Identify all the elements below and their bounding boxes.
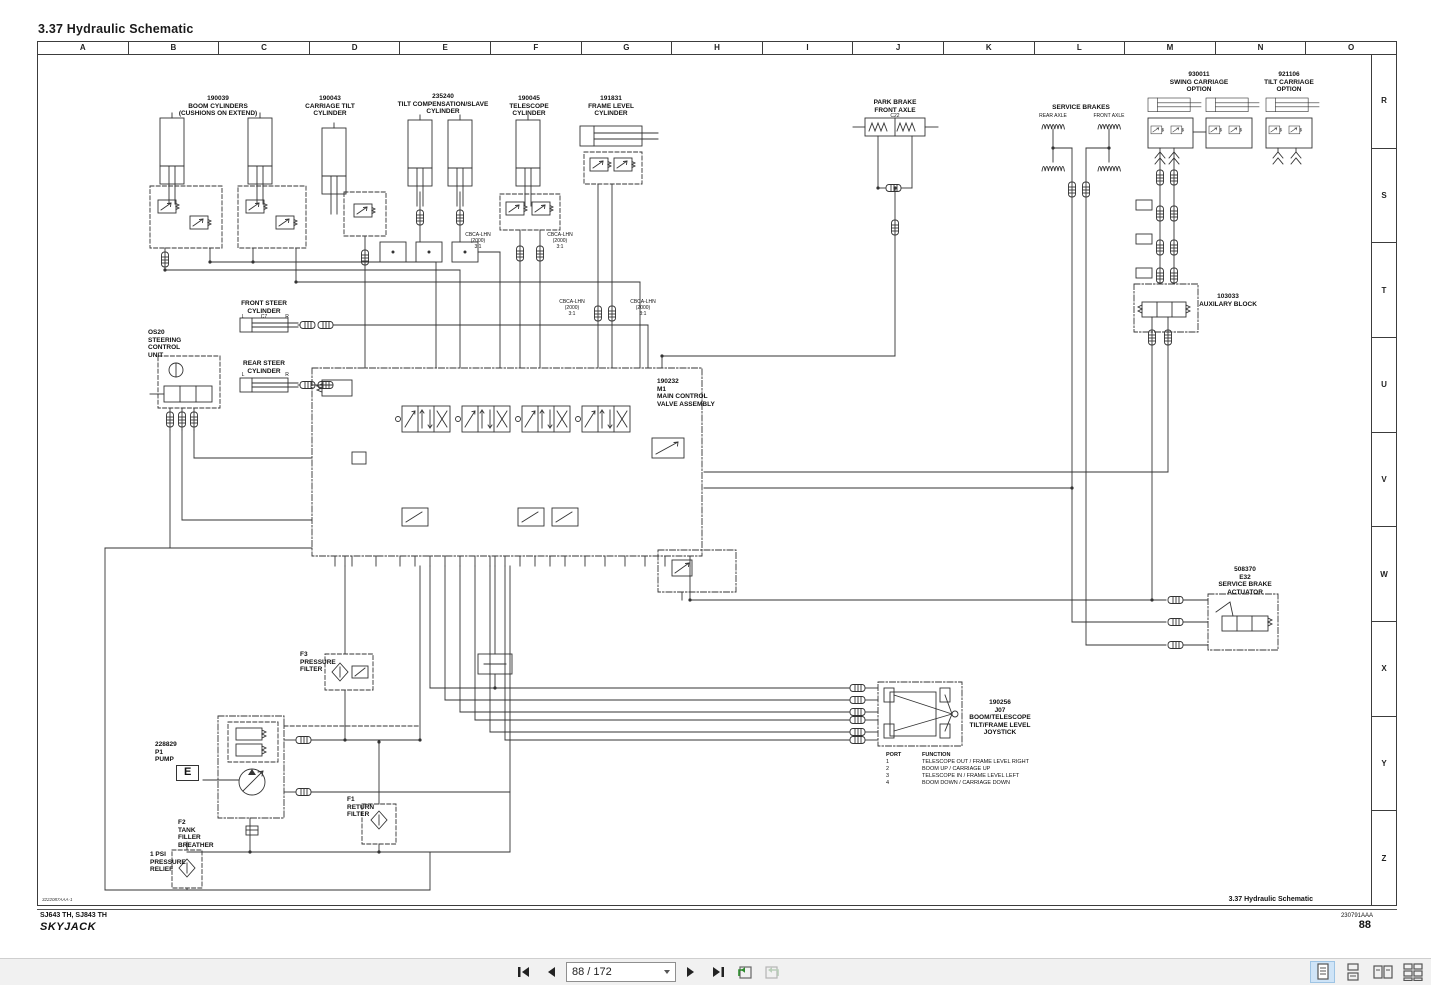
- label-rear-steer-port-l: L: [242, 372, 245, 378]
- port-table-row: 4BOOM DOWN / CARRIAGE DOWN: [884, 780, 1092, 787]
- label-park-brake: PARK BRAKEFRONT AXLE: [874, 99, 917, 114]
- next-view-icon: [763, 964, 781, 980]
- page-layout-group: [1310, 961, 1425, 983]
- label-cb-note-frame-right: CBCA-LHN(2000)3:1: [630, 299, 656, 317]
- layout-facing-pages-button[interactable]: [1370, 961, 1395, 983]
- layout-continuous-button[interactable]: [1340, 961, 1365, 983]
- continuous-scroll-icon: [1345, 963, 1361, 981]
- label-steering-control-unit: OS20STEERINGCONTROLUNIT: [148, 329, 181, 359]
- facing-continuous-icon: [1403, 963, 1423, 981]
- port-table-row: 2BOOM UP / CARRIAGE UP: [884, 766, 1092, 773]
- port-function-table: PORTFUNCTION1TELESCOPE OUT / FRAME LEVEL…: [884, 752, 1092, 787]
- label-auxiliary-block: 103033AUXILARY BLOCK: [1199, 293, 1257, 308]
- footer-section-ref: 3.37 Hydraulic Schematic: [1229, 896, 1313, 903]
- page-number-input[interactable]: 88 / 172: [566, 962, 676, 982]
- port-table-row: 1TELESCOPE OUT / FRAME LEVEL RIGHT: [884, 759, 1092, 766]
- footer-models: SJ643 TH, SJ843 TH: [40, 912, 107, 919]
- previous-page-icon: [545, 966, 557, 978]
- label-main-control-valve: 190232M1MAIN CONTROLVALVE ASSEMBLY: [657, 378, 715, 408]
- skyjack-logo: SKYJACK: [40, 921, 96, 933]
- label-swing-carriage-option: 930011SWING CARRIAGEOPTION: [1170, 71, 1229, 94]
- previous-view-icon: [736, 964, 754, 980]
- label-rear-steer-cylinder: REAR STEERCYLINDER: [243, 360, 285, 375]
- previous-page-button[interactable]: [539, 961, 563, 983]
- label-telescope-cylinder: 190045TELESCOPECYLINDER: [509, 95, 548, 118]
- previous-view-button[interactable]: [733, 961, 757, 983]
- hydraulic-schematic-drawing: [0, 0, 1431, 958]
- label-tilt-carriage-option: 921106TILT CARRIAGEOPTION: [1264, 71, 1314, 94]
- label-pressure-filter: F3PRESSUREFILTER: [300, 651, 336, 674]
- first-page-button[interactable]: [512, 961, 536, 983]
- label-pressure-relief: 1 PSIPRESSURERELIEF: [150, 851, 186, 874]
- layout-single-page-button[interactable]: [1310, 961, 1335, 983]
- first-page-icon: [517, 966, 531, 978]
- viewer-statusbar: 88 / 172: [0, 958, 1431, 985]
- footer-page-number: 88: [1359, 919, 1371, 931]
- label-front-steer-port-c7: C7: [261, 314, 267, 320]
- next-page-button[interactable]: [679, 961, 703, 983]
- label-service-brakes-front-axle: FRONT AXLE: [1093, 113, 1124, 119]
- label-cb-note-frame-left: CBCA-LHN(2000)3:1: [559, 299, 585, 317]
- single-page-icon: [1315, 963, 1331, 981]
- next-view-button[interactable]: [760, 961, 784, 983]
- pdf-viewer-window: 3.37 Hydraulic Schematic ABCDEFGHIJKLMNO…: [0, 0, 1431, 985]
- page-indicator-text: 88 / 172: [572, 966, 612, 978]
- page-dropdown-caret: [664, 970, 670, 974]
- label-rear-steer-port-r: R: [285, 372, 289, 378]
- layout-facing-continuous-button[interactable]: [1400, 961, 1425, 983]
- port-table-header: PORTFUNCTION: [884, 752, 1092, 759]
- label-pump-e-marker: E: [176, 765, 199, 781]
- label-frame-level-cylinder: 191831FRAME LEVELCYLINDER: [588, 95, 634, 118]
- label-tank-filler-breather: F2TANKFILLERBREATHER: [178, 819, 214, 849]
- label-cb-note-telescope-right: CBCA-LHN(2000)3:1: [547, 232, 573, 250]
- label-front-steer-cylinder: FRONT STEERCYLINDER: [241, 300, 287, 315]
- label-joystick: 190256J07BOOM/TELESCOPETILT/FRAME LEVELJ…: [969, 699, 1030, 737]
- facing-pages-icon: [1373, 963, 1393, 981]
- last-page-icon: [711, 966, 725, 978]
- last-page-button[interactable]: [706, 961, 730, 983]
- next-page-icon: [685, 966, 697, 978]
- label-service-brakes: SERVICE BRAKES: [1052, 104, 1110, 112]
- label-front-steer-port-l: L: [242, 314, 245, 320]
- label-front-steer-port-r: R: [285, 314, 289, 320]
- label-service-brakes-rear-axle: REAR AXLE: [1039, 113, 1067, 119]
- footer-divider: [37, 909, 1397, 910]
- label-carriage-tilt-cylinder: 190043CARRIAGE TILTCYLINDER: [305, 95, 355, 118]
- label-cb-note-telescope-left: CBCA-LHN(2000)3:1: [465, 232, 491, 250]
- label-park-brake-port: C22: [890, 113, 899, 119]
- label-return-filter: F1RETURNFILTER: [347, 796, 374, 819]
- label-service-brake-actuator: 508370E32SERVICE BRAKEACTUATOR: [1218, 566, 1271, 596]
- port-table-row: 3TELESCOPE IN / FRAME LEVEL LEFT: [884, 773, 1092, 780]
- page-navigation-group: 88 / 172: [512, 959, 784, 985]
- label-tilt-compensation-cylinder: 235240TILT COMPENSATION/SLAVECYLINDER: [398, 93, 489, 116]
- label-boom-cylinders: 190039BOOM CYLINDERS(CUSHIONS ON EXTEND): [179, 95, 257, 118]
- label-pump: 228829P1PUMP: [155, 741, 177, 764]
- drawing-code: 3222087AAA-1: [42, 897, 73, 902]
